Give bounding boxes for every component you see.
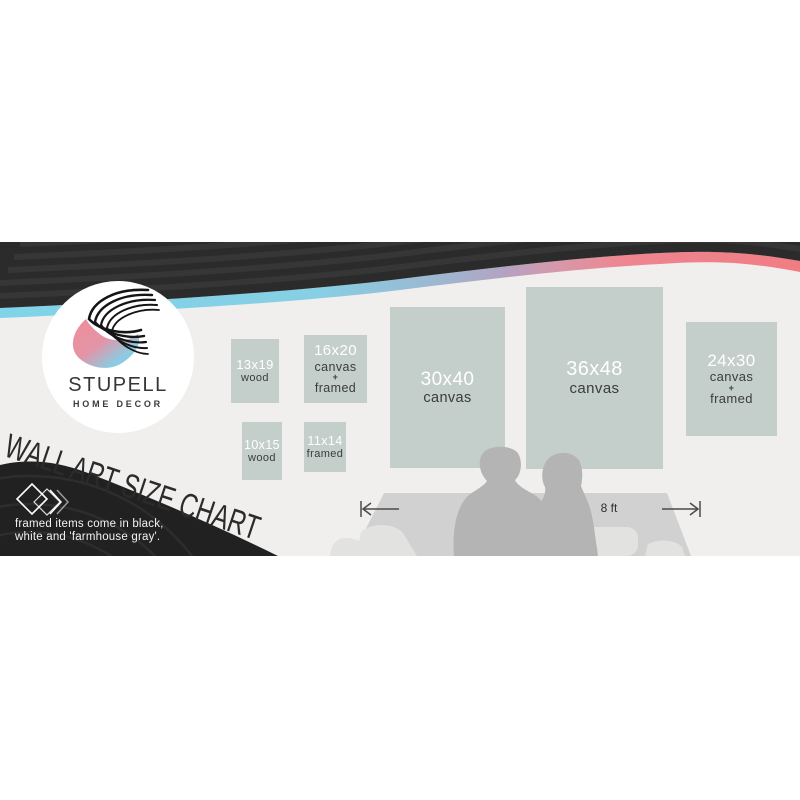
framed-note-line2: white and 'farmhouse gray'. [15,531,164,544]
framed-note-line1: framed items come in black, [15,518,164,531]
framed-note: framed items come in black, white and 'f… [15,518,164,543]
brand-logo: STUPELL HOME DECOR [42,281,194,433]
couple-silhouette [454,447,598,556]
diamond-chevron-icon [17,484,68,515]
brand-tagline: HOME DECOR [42,399,194,409]
chart-band: 13x19 wood 16x20 canvas + framed 10x15 w… [0,242,800,556]
size-chart-infographic: 13x19 wood 16x20 canvas + framed 10x15 w… [0,0,800,800]
logo-s-mark [42,281,194,433]
room-width-label: 8 ft [592,501,626,515]
brand-name: STUPELL [42,374,194,397]
